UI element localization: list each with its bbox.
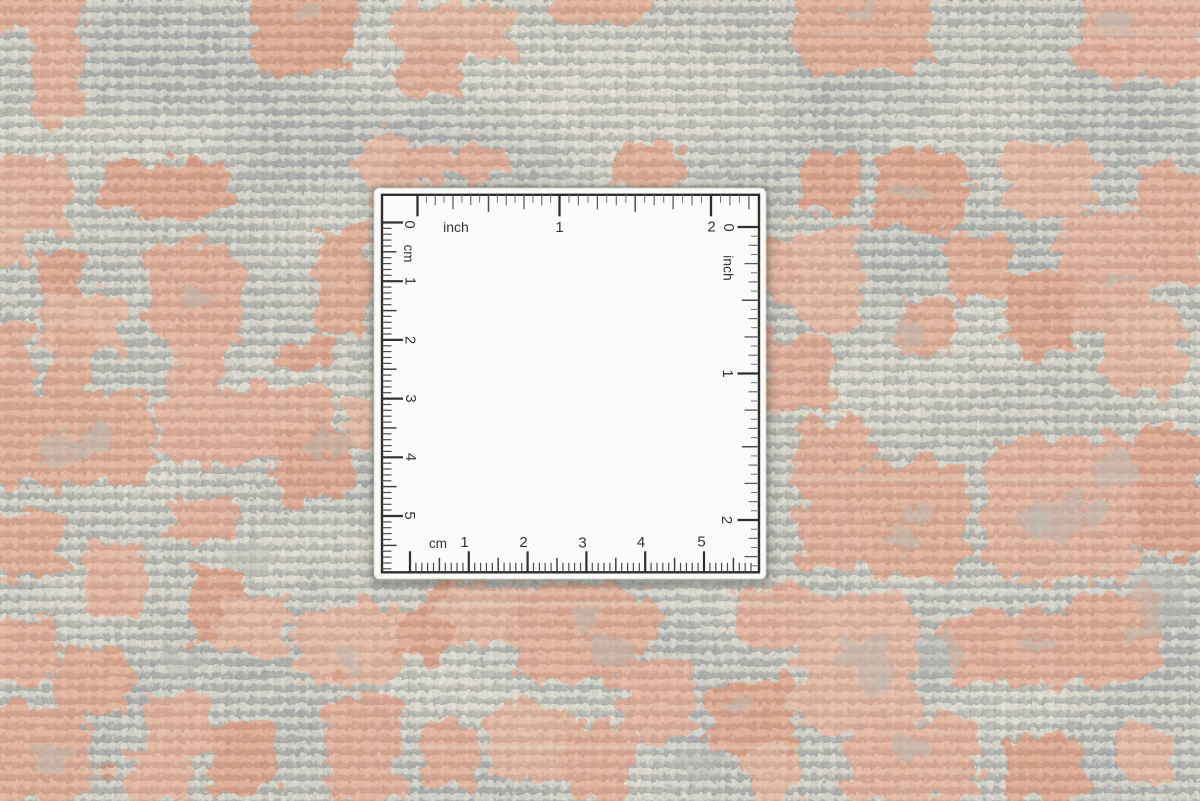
svg-text:2: 2: [519, 534, 527, 551]
svg-text:1: 1: [460, 534, 468, 551]
svg-text:1: 1: [719, 369, 736, 377]
svg-text:2: 2: [718, 516, 735, 524]
svg-text:4: 4: [637, 534, 645, 551]
svg-text:0: 0: [401, 220, 418, 228]
svg-text:5: 5: [401, 511, 418, 519]
svg-text:4: 4: [402, 453, 419, 461]
svg-text:2: 2: [707, 219, 715, 236]
svg-text:cm: cm: [429, 536, 447, 551]
svg-text:inch: inch: [721, 255, 737, 281]
svg-text:inch: inch: [443, 219, 469, 235]
svg-text:3: 3: [578, 535, 586, 552]
svg-text:1: 1: [555, 219, 563, 236]
svg-text:1: 1: [402, 277, 419, 285]
svg-text:5: 5: [697, 534, 705, 551]
svg-text:0: 0: [720, 223, 737, 231]
svg-text:2: 2: [402, 336, 419, 344]
svg-text:3: 3: [402, 394, 419, 402]
svg-text:cm: cm: [401, 245, 416, 263]
